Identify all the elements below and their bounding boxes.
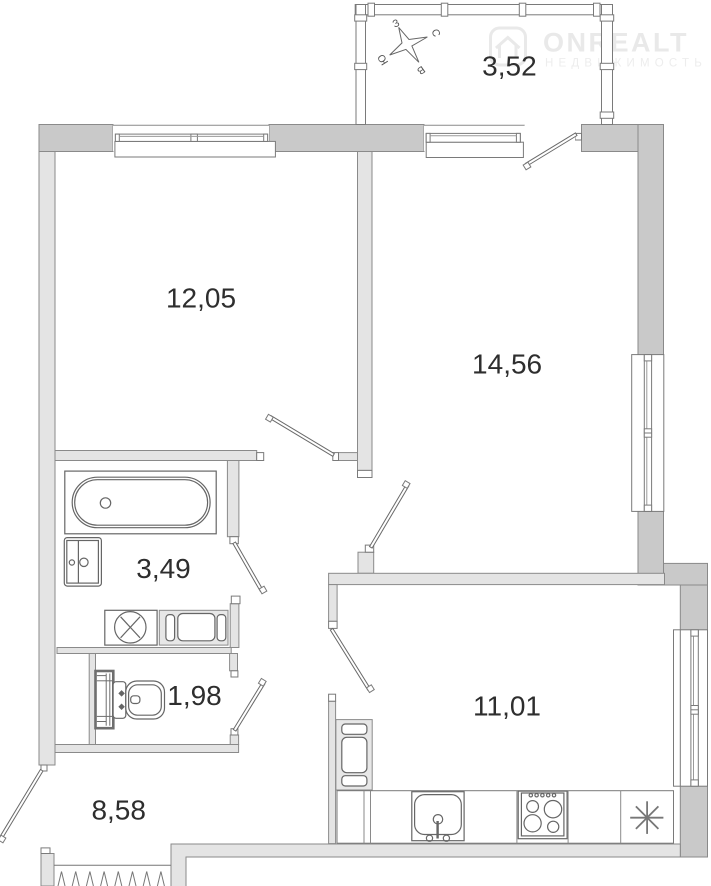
- svg-text:3,49: 3,49: [136, 553, 191, 584]
- svg-text:З: З: [391, 17, 402, 31]
- svg-text:1,98: 1,98: [167, 680, 222, 711]
- svg-text:12,05: 12,05: [166, 283, 236, 314]
- svg-text:11,01: 11,01: [473, 690, 541, 721]
- svg-text:В: В: [415, 63, 428, 77]
- svg-text:ONREALT: ONREALT: [543, 28, 689, 58]
- svg-text:С: С: [428, 27, 442, 39]
- svg-text:3,52: 3,52: [482, 51, 537, 82]
- svg-text:Ю: Ю: [375, 51, 391, 67]
- svg-text:14,56: 14,56: [472, 349, 542, 380]
- svg-text:8,58: 8,58: [91, 794, 146, 825]
- svg-text:НЕДВИЖИМОСТЬ: НЕДВИЖИМОСТЬ: [545, 58, 707, 70]
